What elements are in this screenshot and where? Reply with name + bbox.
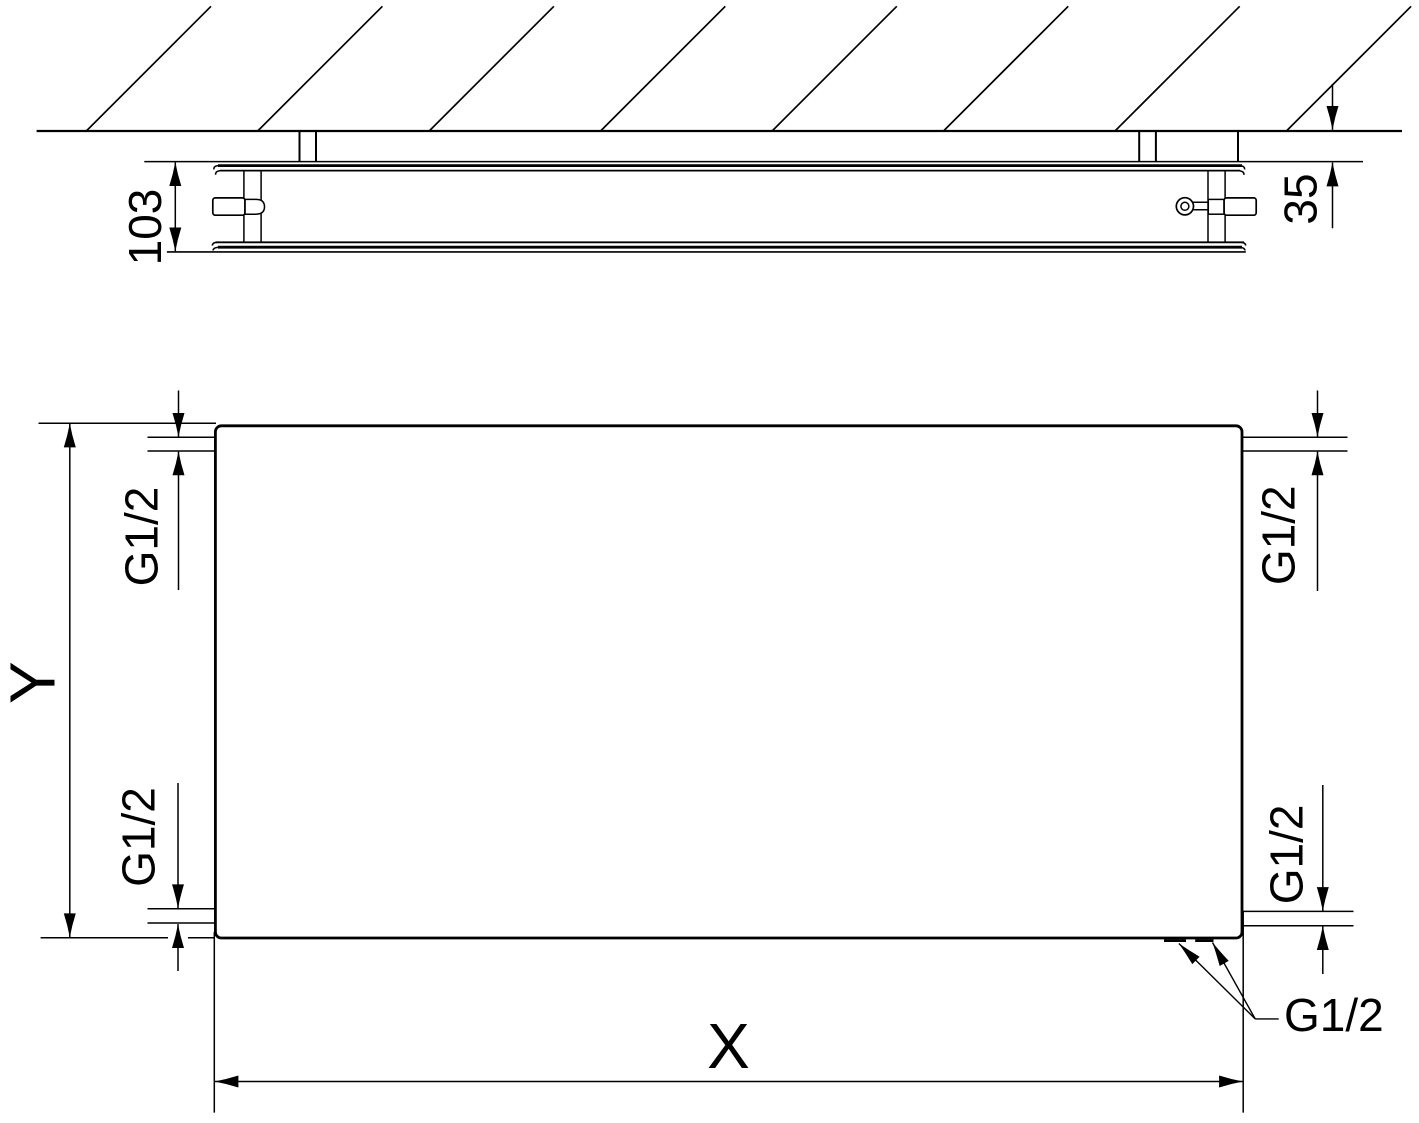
svg-text:G1/2: G1/2 — [116, 487, 168, 587]
svg-text:103: 103 — [119, 189, 171, 266]
svg-text:G1/2: G1/2 — [112, 787, 164, 887]
svg-text:G1/2: G1/2 — [1260, 805, 1312, 905]
svg-text:35: 35 — [1275, 173, 1327, 224]
svg-text:G1/2: G1/2 — [1253, 485, 1305, 585]
svg-text:Y: Y — [0, 661, 69, 704]
svg-text:G1/2: G1/2 — [1284, 989, 1384, 1041]
svg-text:X: X — [707, 1010, 750, 1082]
